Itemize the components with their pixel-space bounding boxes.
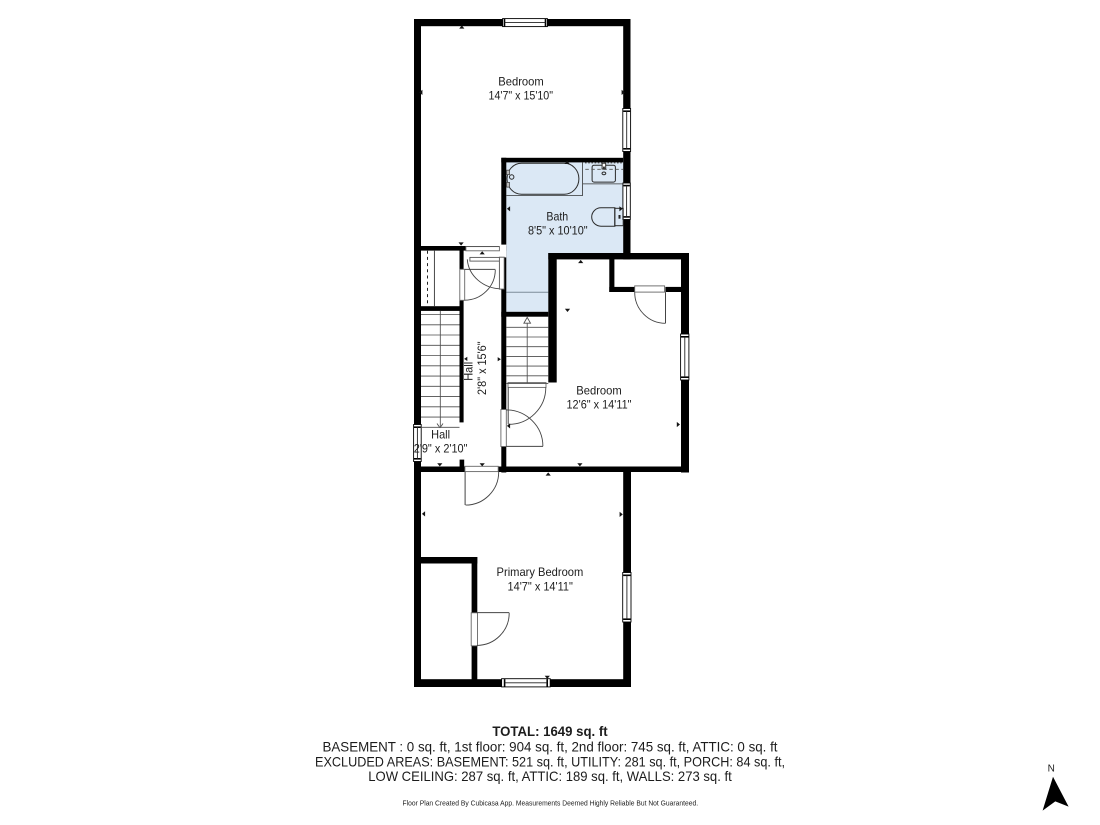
svg-text:N: N (1048, 764, 1055, 775)
svg-text:Primary Bedroom: Primary Bedroom (497, 565, 584, 579)
svg-text:EXCLUDED AREAS: BASEMENT: 521: EXCLUDED AREAS: BASEMENT: 521 sq. ft, UT… (315, 753, 785, 769)
svg-text:Bedroom: Bedroom (576, 383, 622, 397)
svg-text:BASEMENT : 0 sq. ft, 1st floor: BASEMENT : 0 sq. ft, 1st floor: 904 sq. … (323, 739, 778, 755)
svg-text:2'9" x 2'10": 2'9" x 2'10" (414, 441, 468, 455)
svg-text:Floor Plan Created By Cubicasa: Floor Plan Created By Cubicasa App. Meas… (403, 798, 699, 807)
svg-text:TOTAL: 1649 sq. ft: TOTAL: 1649 sq. ft (492, 723, 608, 739)
svg-text:12'6" x 14'11": 12'6" x 14'11" (567, 397, 632, 411)
svg-text:LOW CEILING: 287 sq. ft, ATTIC: LOW CEILING: 287 sq. ft, ATTIC: 189 sq. … (368, 768, 732, 784)
svg-text:2'8" x 15'6": 2'8" x 15'6" (475, 341, 489, 395)
svg-text:8'5" x 10'10": 8'5" x 10'10" (528, 223, 588, 237)
svg-text:14'7" x 15'10": 14'7" x 15'10" (489, 88, 554, 102)
svg-text:14'7" x 14'11": 14'7" x 14'11" (508, 579, 573, 593)
svg-text:Hall: Hall (461, 362, 475, 381)
svg-text:Bedroom: Bedroom (498, 75, 544, 89)
svg-text:Hall: Hall (431, 428, 450, 442)
svg-text:Bath: Bath (546, 210, 568, 224)
